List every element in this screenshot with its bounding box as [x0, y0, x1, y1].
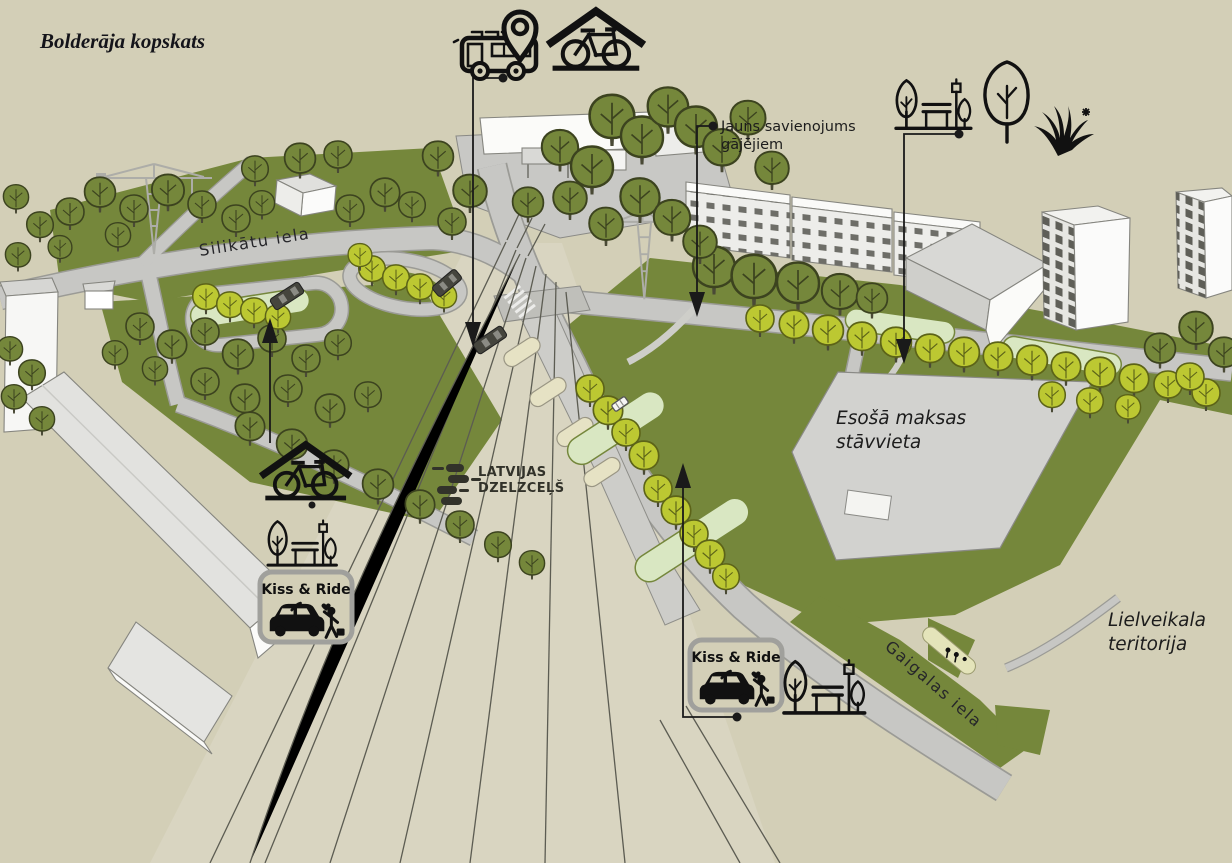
leader-dot-new-connection	[709, 122, 718, 131]
tower-2	[1176, 188, 1232, 298]
kiss-and-ride-text-south: Kiss & Ride	[691, 650, 780, 666]
kiss-and-ride-badge-west: Kiss & Ride	[260, 572, 352, 642]
leader-dot-park	[955, 130, 964, 139]
bolderaja-plan-svg: Bolderāja kopskats	[0, 0, 1232, 863]
railway-logo-line2: DZELZCEĻŠ	[478, 480, 564, 496]
railway-logo-line1: LATVIJAS	[478, 465, 547, 480]
leader-dot-west-icons	[309, 502, 316, 509]
apartment-slab-2	[792, 197, 892, 272]
kiss-and-ride-text-west: Kiss & Ride	[261, 582, 350, 598]
page-title: Bolderāja kopskats	[39, 29, 205, 53]
mall-area-line1: Lielveikala	[1108, 610, 1206, 631]
tower-1	[1042, 206, 1130, 330]
existing-parking-line2: stāvvieta	[836, 432, 921, 453]
new-connection-line2: gājējiem	[721, 137, 783, 153]
new-connection-line1: Jauns savienojums	[720, 119, 856, 135]
mall-area-line2: teritorija	[1108, 634, 1187, 655]
building-small-house-west	[83, 281, 115, 309]
leader-dot-bus-stop	[499, 74, 508, 83]
existing-parking-line1: Esošā maksas	[836, 408, 967, 429]
kiss-and-ride-badge-south: Kiss & Ride	[690, 640, 782, 710]
site-plan-rendering: Bolderāja kopskats	[0, 0, 1232, 863]
leader-dot-kiss-ride	[733, 713, 742, 722]
